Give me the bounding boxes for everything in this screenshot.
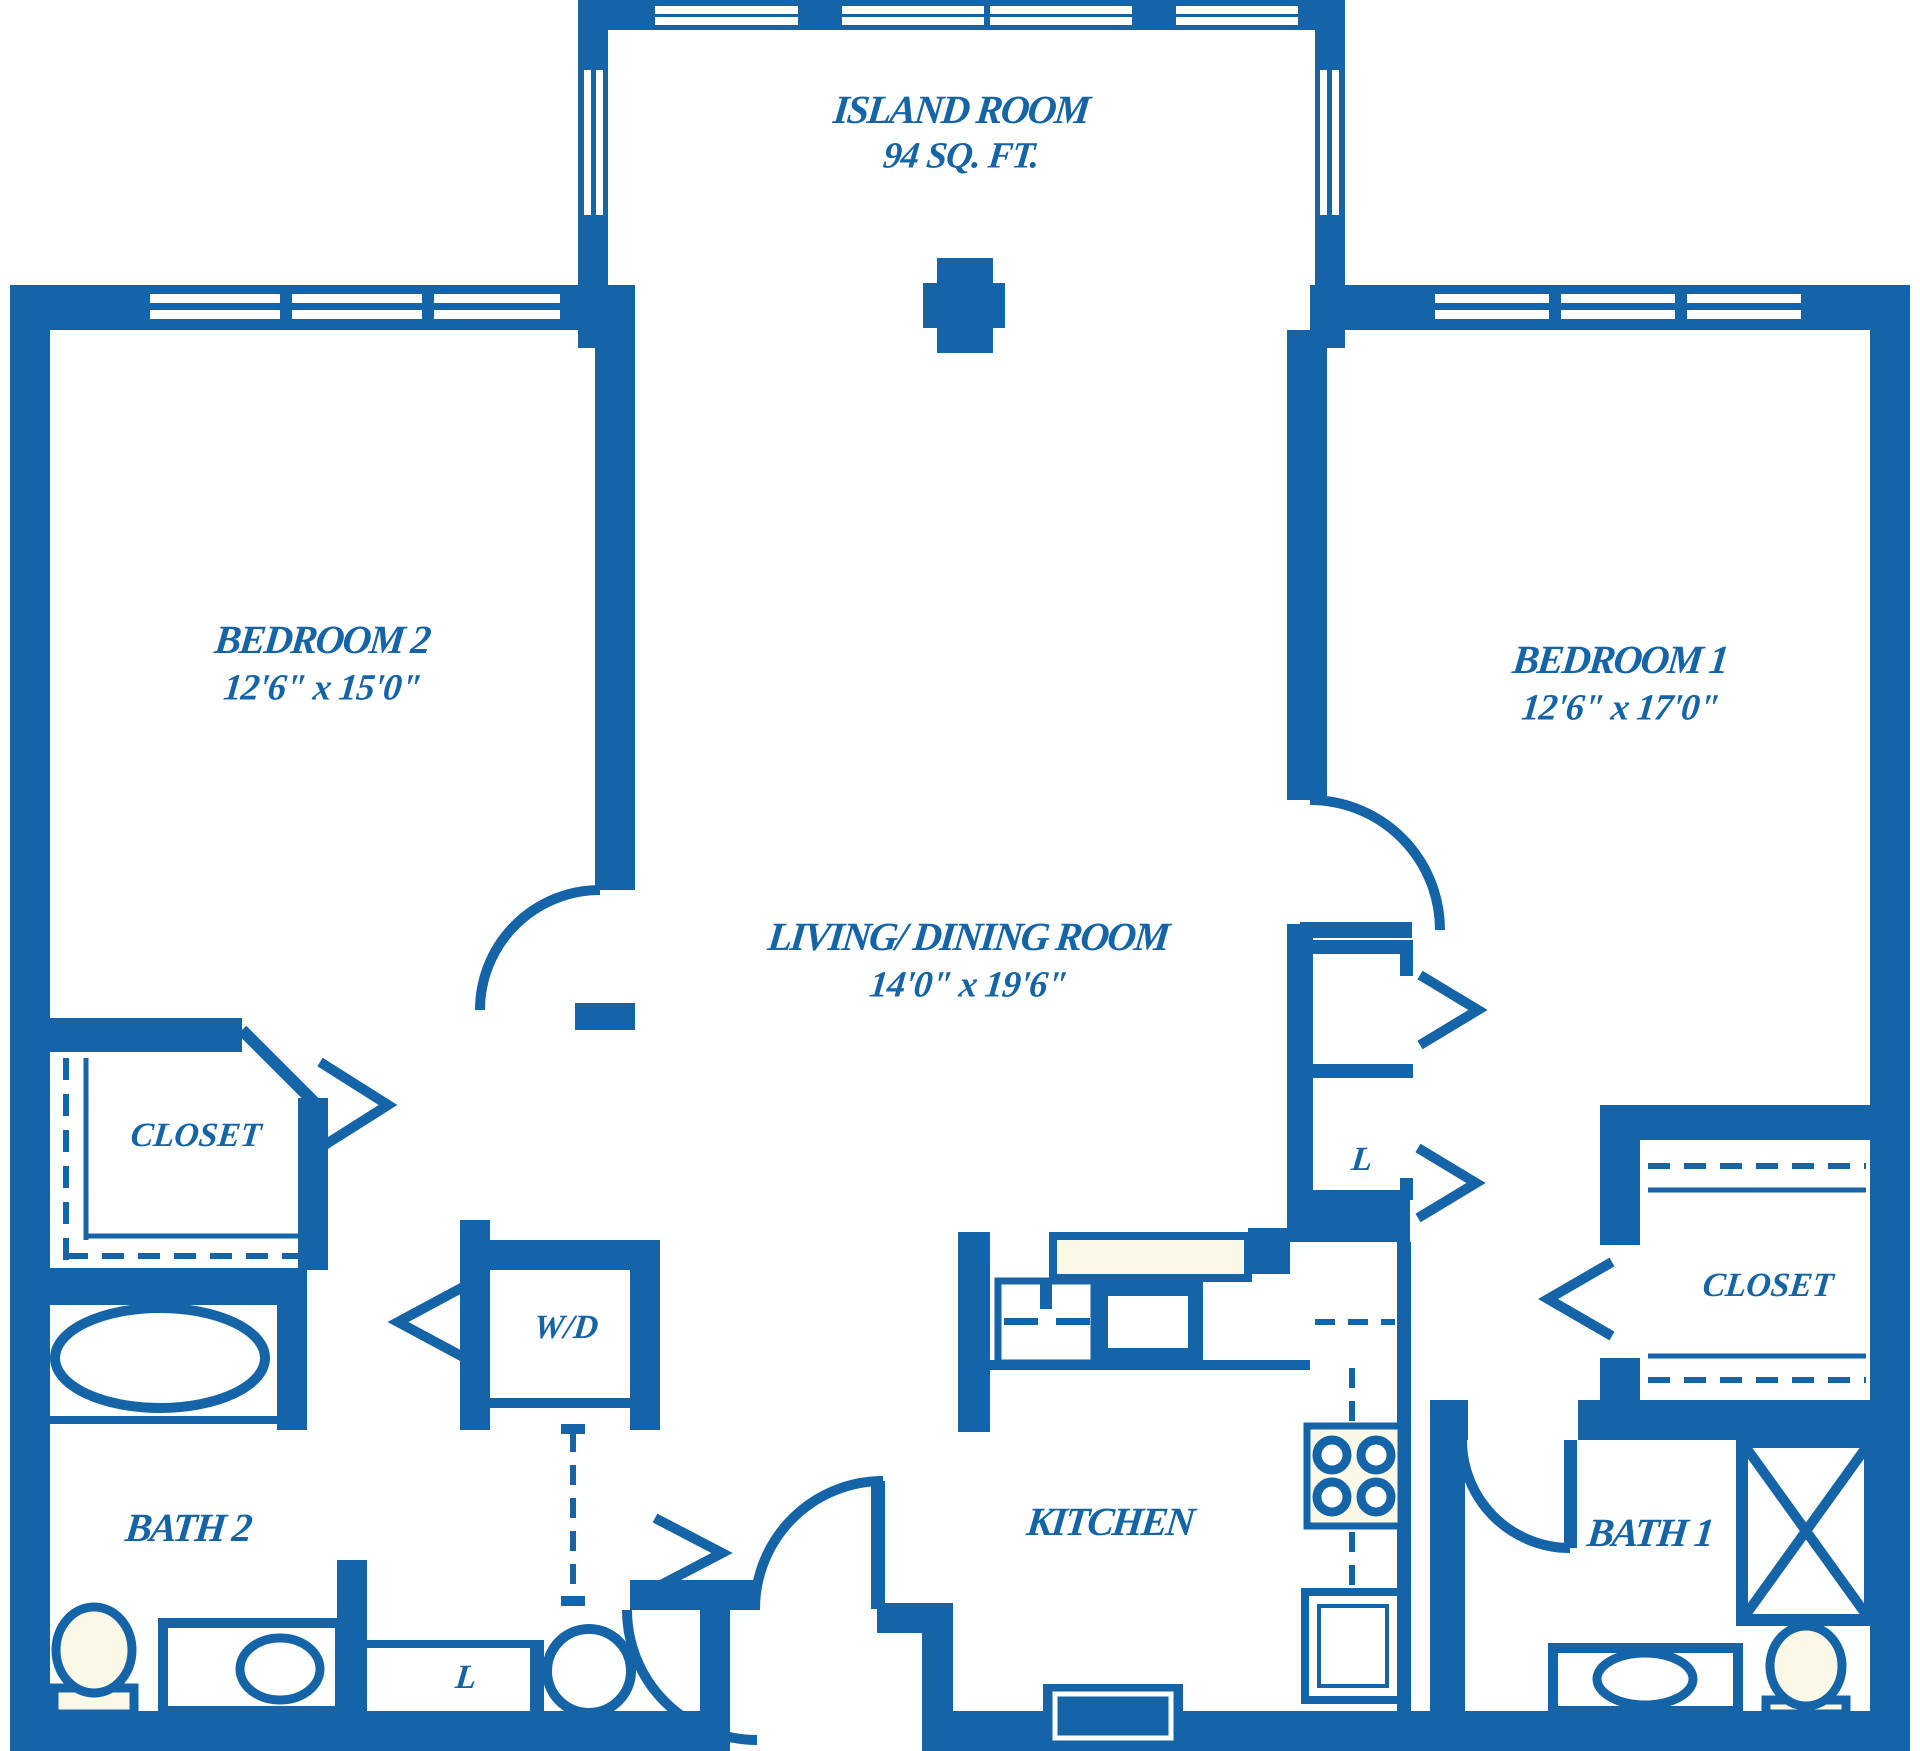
window-icon xyxy=(596,70,603,215)
closet-column-jamb-2 xyxy=(1400,1064,1413,1078)
bedroom2-bottom-wall xyxy=(10,1018,242,1052)
sink-icon xyxy=(547,1629,631,1713)
closet1-label: CLOSET xyxy=(1701,1269,1835,1303)
sink-divider xyxy=(1056,1318,1090,1325)
window-icon xyxy=(842,17,984,25)
island-room-label: ISLAND ROOM xyxy=(832,90,1091,130)
entry-hinge-wall xyxy=(877,1603,953,1633)
bath2-hall-arrow-icon xyxy=(655,1518,722,1588)
bath1-left-wall xyxy=(1430,1440,1465,1711)
linen2-top-line xyxy=(367,1640,544,1648)
living-dining-dimensions: 14'0" x 19'6" xyxy=(868,967,1069,1004)
burner-icon xyxy=(1361,1482,1391,1512)
burner-icon xyxy=(1361,1440,1391,1470)
window-icon xyxy=(1687,310,1801,319)
window-icon xyxy=(1435,310,1549,319)
bedroom1-label: BEDROOM 1 xyxy=(1511,640,1729,680)
kitchen-bar-counter xyxy=(1053,1236,1248,1278)
window-icon xyxy=(150,294,280,303)
window-icon xyxy=(1176,17,1298,25)
window-icon xyxy=(1435,294,1549,303)
closet1-top-wall xyxy=(1600,1105,1910,1140)
closet2-door-arrow-icon xyxy=(320,1062,388,1148)
window-icon xyxy=(1687,294,1801,303)
window-icon xyxy=(1320,70,1327,215)
entry-right-strip xyxy=(922,1633,953,1751)
bedroom1-dimensions: 12'6" x 17'0" xyxy=(1520,690,1721,727)
window-icon xyxy=(655,6,798,14)
bedroom2-door-stub xyxy=(575,1003,635,1030)
bedroom2-top-wall xyxy=(10,285,610,330)
counter-end-post xyxy=(1248,1228,1290,1274)
window-icon xyxy=(842,6,984,14)
island-top-wall xyxy=(578,0,1345,30)
wd-right-wall xyxy=(630,1240,660,1430)
bath1-label: BATH 1 xyxy=(1586,1513,1715,1553)
wd-bottom-edge xyxy=(490,1398,630,1408)
bath1-door-leaf xyxy=(1564,1440,1577,1548)
bathtub-icon xyxy=(55,1308,265,1408)
bedroom2-dimensions: 12'6" x 15'0" xyxy=(222,670,423,707)
bedroom1-door-leaf xyxy=(1300,922,1412,938)
fixtures xyxy=(45,1236,1870,1748)
bifold-bottom-cap xyxy=(561,1596,585,1606)
window-icon xyxy=(1332,70,1339,215)
sink-icon xyxy=(240,1638,320,1700)
closet-column-left-wall xyxy=(1287,924,1313,1200)
hall-wall xyxy=(630,1580,760,1610)
window-icon xyxy=(990,17,1132,25)
closet-column-divider xyxy=(1287,1064,1413,1078)
closet2-door-line xyxy=(242,1030,316,1104)
bedroom2-right-wall xyxy=(595,285,635,890)
window-icon xyxy=(434,294,560,303)
bedroom2-label: BEDROOM 2 xyxy=(213,620,431,660)
sink-divider xyxy=(1004,1318,1038,1325)
window-icon xyxy=(990,6,1132,14)
bedroom1-top-wall xyxy=(1310,285,1910,330)
bedroom2-door-arc xyxy=(480,890,600,1010)
living-dining-label: LIVING/ DINING ROOM xyxy=(766,917,1170,957)
island-room-area: 94 SQ. FT. xyxy=(881,138,1040,175)
washer-dryer-label: W/D xyxy=(532,1311,600,1345)
window-icon xyxy=(150,310,280,319)
window-icon xyxy=(434,310,560,319)
tub-right-wall xyxy=(277,1268,307,1430)
linen2-right-wall xyxy=(530,1640,544,1711)
closet-column-bottom-wall xyxy=(1287,1190,1410,1242)
bath1-top-wall-left xyxy=(1430,1400,1468,1440)
closet1-left-wall-upper xyxy=(1600,1105,1640,1245)
burner-icon xyxy=(1317,1440,1347,1470)
sink-icon xyxy=(1597,1653,1693,1705)
bath1-door-jamb xyxy=(1578,1400,1600,1440)
toilet-icon xyxy=(56,1607,132,1693)
floor-plan: ISLAND ROOM 94 SQ. FT. BEDROOM 2 12'6" x… xyxy=(0,0,1920,1751)
bedroom1-door-arc xyxy=(1310,800,1440,930)
walls xyxy=(10,0,1910,1751)
column-icon xyxy=(937,258,993,353)
floor-plan-drawing xyxy=(0,0,1920,1751)
bathtub-edge xyxy=(45,1416,277,1424)
toilet-icon xyxy=(1770,1626,1842,1706)
range-icon xyxy=(1108,1296,1188,1348)
hall-closet-arrow-icon xyxy=(1420,975,1478,1045)
faucet-icon xyxy=(1040,1281,1052,1309)
kitchen-label: KITCHEN xyxy=(1025,1502,1195,1542)
bath2-label: BATH 2 xyxy=(124,1508,253,1548)
linen-hall-arrow-icon xyxy=(1418,1148,1476,1218)
closet-column-top xyxy=(1287,940,1413,954)
linen-bath2-label: L xyxy=(454,1661,478,1695)
kitchen-left-wall xyxy=(958,1232,990,1432)
bedroom1-left-wall xyxy=(1287,330,1327,800)
tub-top-wall xyxy=(10,1268,307,1305)
wd-door-arrow-icon xyxy=(398,1286,465,1358)
window-icon xyxy=(1561,294,1675,303)
bath1-door-arc xyxy=(1462,1440,1570,1548)
window-icon xyxy=(1561,310,1675,319)
window-icon xyxy=(292,310,422,319)
window-icon xyxy=(655,17,798,25)
closet1-door-arrow-icon xyxy=(1548,1262,1612,1336)
entry-door-leaf xyxy=(871,1481,885,1609)
linen-hall-label: L xyxy=(1350,1143,1374,1177)
burner-icon xyxy=(1317,1482,1347,1512)
closet2-right-wall xyxy=(298,1098,328,1270)
window-icon xyxy=(1176,6,1298,14)
closet-column-jamb-1 xyxy=(1400,940,1413,976)
bath1-top-wall-right xyxy=(1600,1400,1910,1440)
window-icon xyxy=(584,70,591,215)
closet2-label: CLOSET xyxy=(129,1119,263,1153)
window-icon xyxy=(292,294,422,303)
entry-door-arc xyxy=(755,1481,883,1609)
